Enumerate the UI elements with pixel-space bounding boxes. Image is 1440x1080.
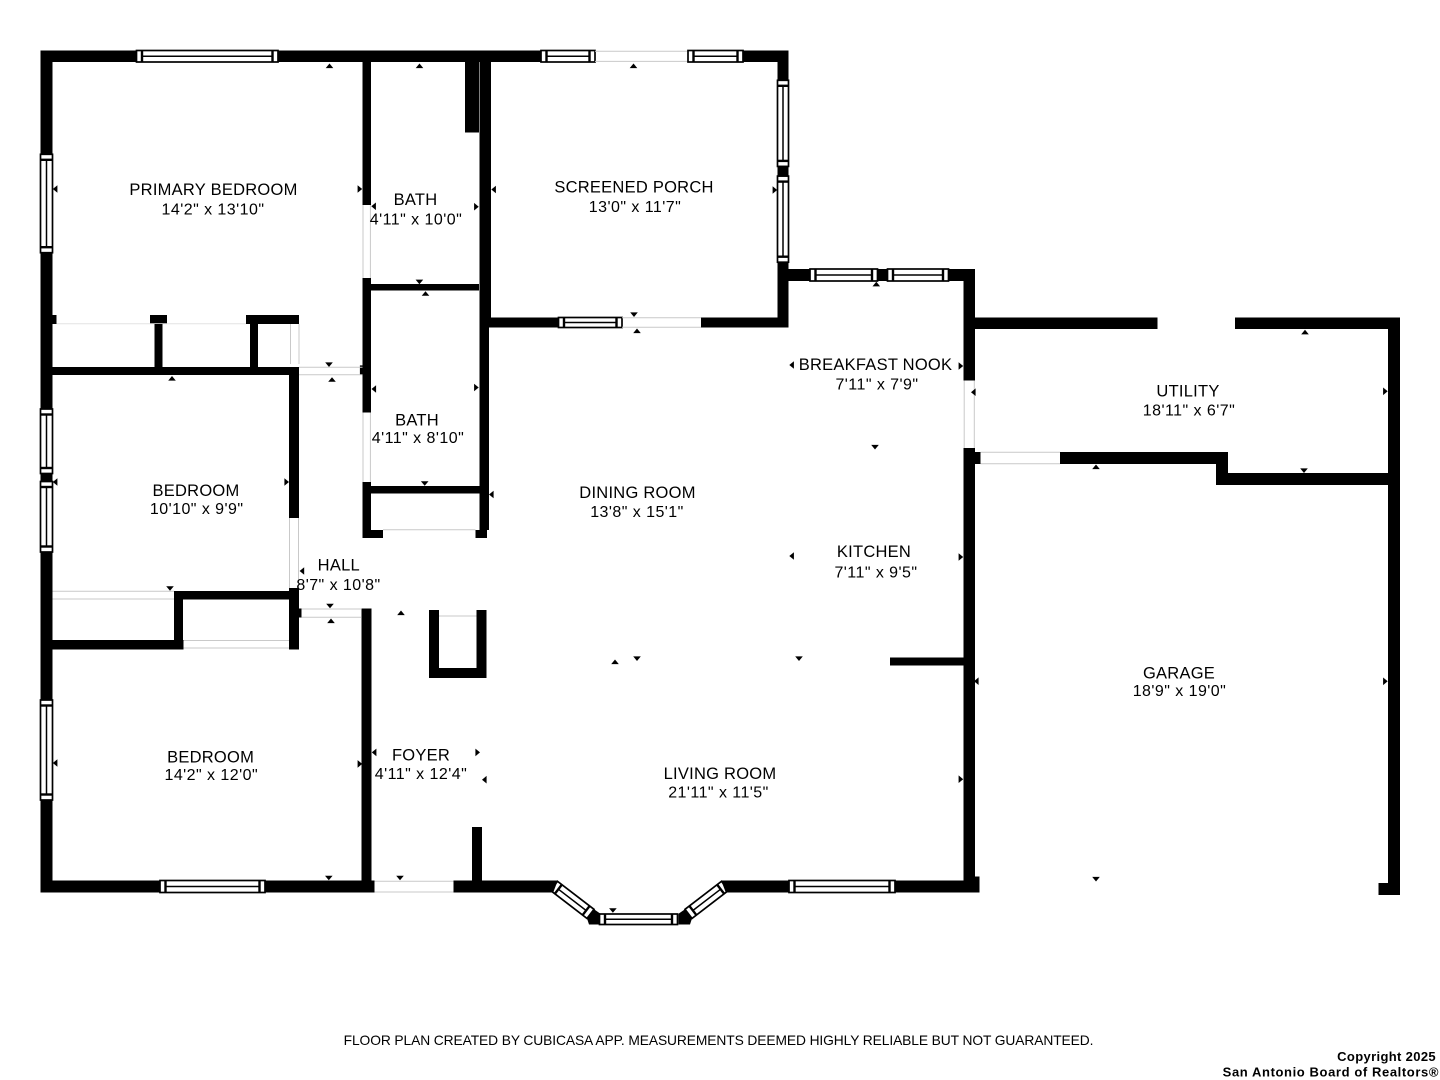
- svg-text:18'9" x 19'0": 18'9" x 19'0": [1133, 683, 1227, 700]
- svg-text:BATH: BATH: [394, 191, 438, 209]
- svg-text:LIVING ROOM: LIVING ROOM: [664, 765, 777, 783]
- svg-text:7'11" x 9'5": 7'11" x 9'5": [834, 565, 917, 582]
- svg-text:BREAKFAST NOOK: BREAKFAST NOOK: [799, 356, 953, 374]
- svg-text:FOYER: FOYER: [392, 747, 450, 765]
- svg-text:PRIMARY BEDROOM: PRIMARY BEDROOM: [129, 181, 297, 199]
- svg-text:FLOOR PLAN CREATED BY CUBICASA: FLOOR PLAN CREATED BY CUBICASA APP. MEAS…: [344, 1033, 1094, 1048]
- svg-text:DINING ROOM: DINING ROOM: [579, 484, 695, 502]
- svg-text:14'2" x 12'0": 14'2" x 12'0": [164, 767, 258, 784]
- svg-text:BEDROOM: BEDROOM: [152, 482, 239, 500]
- svg-text:21'11" x 11'5": 21'11" x 11'5": [668, 785, 769, 802]
- svg-text:13'8" x 15'1": 13'8" x 15'1": [590, 504, 684, 521]
- svg-text:SCREENED PORCH: SCREENED PORCH: [554, 179, 713, 197]
- svg-text:13'0" x 11'7": 13'0" x 11'7": [589, 199, 681, 216]
- svg-text:San Antonio Board of Realtors®: San Antonio Board of Realtors®: [1223, 1065, 1439, 1080]
- svg-text:BEDROOM: BEDROOM: [167, 748, 254, 766]
- svg-text:8'7" x 10'8": 8'7" x 10'8": [296, 577, 380, 594]
- svg-text:GARAGE: GARAGE: [1143, 665, 1215, 683]
- svg-text:14'2" x 13'10": 14'2" x 13'10": [162, 201, 265, 218]
- svg-text:4'11" x 10'0": 4'11" x 10'0": [370, 212, 462, 229]
- svg-text:4'11" x 8'10": 4'11" x 8'10": [372, 430, 464, 447]
- svg-text:BATH: BATH: [395, 412, 439, 430]
- svg-text:UTILITY: UTILITY: [1156, 383, 1219, 401]
- svg-text:KITCHEN: KITCHEN: [837, 543, 911, 561]
- svg-text:10'10" x 9'9": 10'10" x 9'9": [150, 501, 244, 518]
- svg-text:7'11" x 7'9": 7'11" x 7'9": [835, 377, 918, 394]
- svg-text:4'11" x 12'4": 4'11" x 12'4": [375, 766, 467, 783]
- svg-text:HALL: HALL: [318, 557, 360, 575]
- svg-text:18'11" x 6'7": 18'11" x 6'7": [1143, 403, 1235, 420]
- svg-text:Copyright 2025: Copyright 2025: [1337, 1049, 1436, 1064]
